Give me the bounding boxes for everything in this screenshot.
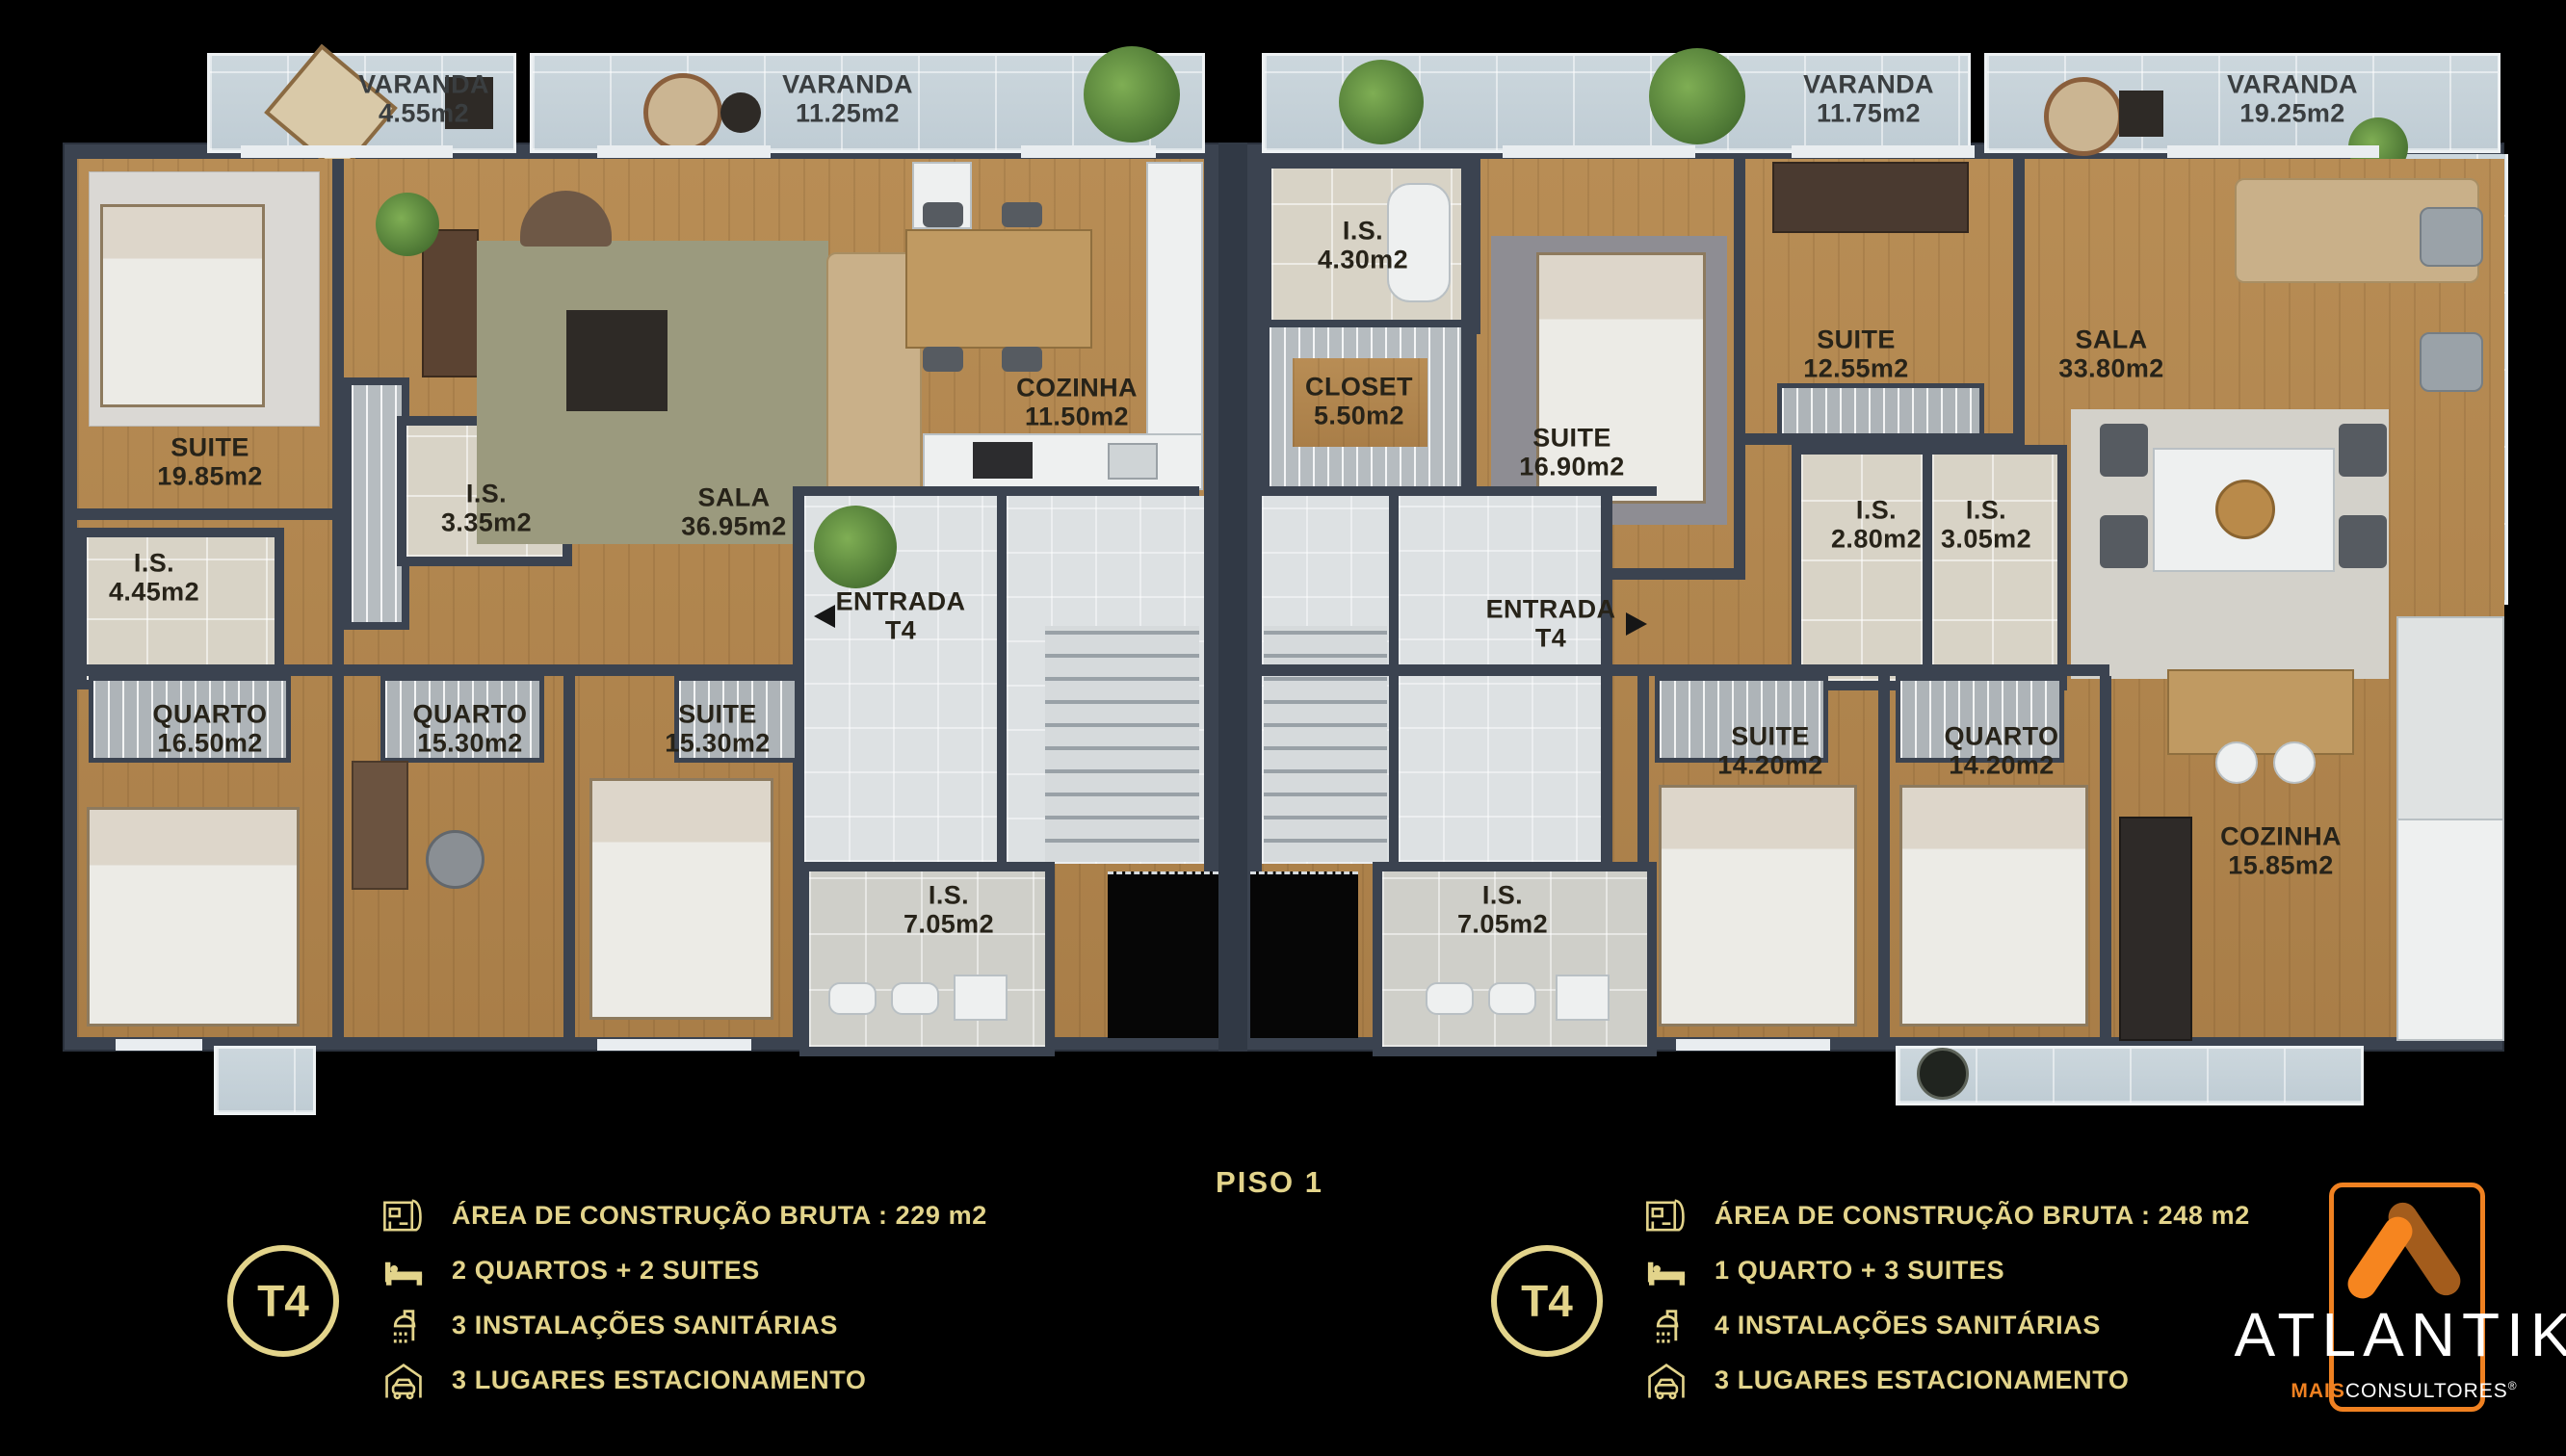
kitchen-counter [923, 433, 1203, 490]
entrance-hall [1399, 496, 1601, 862]
armchair [2420, 332, 2483, 392]
legend-item-area: ÁREA DE CONSTRUÇÃO BRUTA : 229 m2 [380, 1188, 987, 1243]
wall [332, 676, 344, 1045]
room-label-is: I.S.3.35m2 [441, 480, 532, 536]
wardrobe [1777, 383, 1984, 439]
centerpiece [2215, 480, 2275, 539]
room-label-quarto: QUARTO14.20m2 [1945, 722, 2059, 779]
wall [2100, 676, 2111, 1045]
chair [923, 202, 963, 227]
wall [77, 508, 344, 520]
coffee-table [566, 310, 668, 411]
entry-arrow-icon [1626, 612, 1647, 636]
window [1792, 145, 1975, 158]
chair [1002, 202, 1042, 227]
room-label-is: I.S.2.80m2 [1831, 496, 1922, 553]
registered-mark: ® [2508, 1379, 2518, 1392]
brand-subtitle: MAISCONSULTORES® [2291, 1379, 2517, 1403]
sideboard [422, 229, 479, 377]
bed-icon [380, 1248, 427, 1294]
wall [1389, 496, 1399, 864]
hob [973, 442, 1033, 479]
window [1503, 145, 1695, 158]
floorplan-poster: { "floor_label": "PISO 1", "plan": { "le… [0, 0, 2566, 1456]
kitchen-bar-table [2167, 669, 2354, 755]
brand-subtitle-regular: CONSULTORES [2345, 1380, 2508, 1402]
staircase [1045, 626, 1199, 862]
desk [352, 761, 408, 890]
wall [1745, 433, 2013, 445]
planter-icon [1917, 1048, 1969, 1100]
room-label-entrada: ENTRADAT4 [836, 587, 966, 644]
kitchen-appliance-wall [2396, 819, 2504, 1041]
legend-item-bedrooms: 1 QUARTO + 3 SUITES [1643, 1243, 2250, 1298]
stair-void [1108, 871, 1218, 1038]
wall [332, 159, 344, 676]
room-label-cozinha: COZINHA15.85m2 [2220, 822, 2342, 879]
bidet [891, 982, 939, 1015]
cube-seat [2119, 91, 2163, 137]
plant-icon [814, 506, 897, 588]
chair [2100, 424, 2148, 477]
bed-icon [1643, 1248, 1689, 1294]
lounge-chair [2044, 77, 2123, 156]
sink [1108, 443, 1158, 480]
kitchen-island [2119, 817, 2192, 1041]
plant-icon [1649, 48, 1745, 144]
room-label-is: I.S.3.05m2 [1941, 496, 2031, 553]
side-table [720, 92, 761, 133]
legend-left: ÁREA DE CONSTRUÇÃO BRUTA : 229 m2 2 QUAR… [380, 1188, 987, 1408]
wall [1262, 486, 1657, 496]
legend-item-bathrooms: 4 INSTALAÇÕES SANITÁRIAS [1643, 1298, 2250, 1353]
shower-tray [954, 975, 1008, 1021]
room-label-suite: SUITE16.90m2 [1519, 424, 1624, 481]
bed [589, 778, 773, 1020]
room-label-sala: SALA33.80m2 [2058, 325, 2163, 382]
legend-item-parking: 3 LUGARES ESTACIONAMENTO [380, 1353, 987, 1408]
brand-name: ATLANTIK [2234, 1299, 2566, 1370]
wall [804, 486, 1199, 496]
window [597, 1039, 751, 1051]
chair [2100, 515, 2148, 568]
wall [1734, 159, 1745, 580]
armchair [2420, 207, 2483, 267]
plant-icon [1084, 46, 1180, 143]
room-label-suite: SUITE15.30m2 [665, 700, 770, 757]
kitchen-tall-units [1146, 162, 1203, 445]
bed [100, 204, 265, 407]
entry-arrow-icon [814, 605, 835, 628]
legend-right: ÁREA DE CONSTRUÇÃO BRUTA : 248 m2 1 QUAR… [1643, 1188, 2250, 1408]
brand-subtitle-bold: MAIS [2291, 1380, 2345, 1402]
brand-logo-mark-icon [2329, 1194, 2475, 1310]
room-label-varanda: VARANDA19.25m2 [2227, 70, 2358, 127]
legend-item-area: ÁREA DE CONSTRUÇÃO BRUTA : 248 m2 [1643, 1188, 2250, 1243]
window [597, 145, 771, 158]
bar-chair [2273, 741, 2316, 784]
stair-void [1250, 871, 1358, 1038]
window [1676, 1039, 1830, 1051]
chair [923, 347, 963, 372]
room-label-quarto: QUARTO15.30m2 [413, 700, 528, 757]
room-label-varanda: VARANDA11.75m2 [1803, 70, 1934, 127]
room-label-suite: SUITE12.55m2 [1803, 325, 1908, 382]
room-label-sala: SALA36.95m2 [681, 483, 786, 540]
room-label-is: I.S.7.05m2 [903, 881, 994, 938]
hanging-chair [426, 830, 484, 889]
legend-item-bathrooms: 3 INSTALAÇÕES SANITÁRIAS [380, 1298, 987, 1353]
garage-icon [1643, 1358, 1689, 1404]
legend-item-bedrooms: 2 QUARTOS + 2 SUITES [380, 1243, 987, 1298]
bidet [1488, 982, 1536, 1015]
chair [2339, 424, 2387, 477]
room-label-is: I.S.4.30m2 [1318, 217, 1408, 273]
kitchen-counter [2396, 616, 2504, 820]
window [116, 1039, 202, 1051]
bathroom-is-305 [1923, 445, 2067, 690]
room-label-entrada: ENTRADAT4 [1486, 595, 1616, 652]
bar-chair [2215, 741, 2258, 784]
toilet [1426, 982, 1474, 1015]
wall [563, 676, 575, 1045]
wall [1878, 676, 1890, 1045]
legend-item-parking: 3 LUGARES ESTACIONAMENTO [1643, 1353, 2250, 1408]
chair [1002, 347, 1042, 372]
room-label-closet: CLOSET5.50m2 [1305, 373, 1413, 429]
room-label-suite: SUITE14.20m2 [1717, 722, 1822, 779]
unit-badge-t4-left: T4 [227, 1245, 339, 1357]
chair [2339, 515, 2387, 568]
room-label-is: I.S.7.05m2 [1457, 881, 1548, 938]
dining-table [905, 229, 1092, 349]
blueprint-icon [380, 1193, 427, 1239]
blueprint-icon [1643, 1193, 1689, 1239]
toilet [828, 982, 877, 1015]
desk [1772, 162, 1969, 233]
lounge-chair [643, 73, 722, 152]
floor-title: PISO 1 [1216, 1165, 1323, 1200]
room-label-quarto: QUARTO16.50m2 [153, 700, 268, 757]
room-label-varanda: VARANDA11.25m2 [782, 70, 913, 127]
garage-icon [380, 1358, 427, 1404]
window [241, 145, 453, 158]
center-party-wall [1218, 143, 1247, 1052]
shower-icon [1643, 1303, 1689, 1349]
bathroom-is-280 [1792, 445, 1934, 690]
room-label-is: I.S.4.45m2 [109, 549, 199, 606]
window [1021, 145, 1156, 158]
window [2167, 145, 2379, 158]
bed [1659, 785, 1857, 1027]
plant-icon [376, 193, 439, 256]
shower-icon [380, 1303, 427, 1349]
bed [87, 807, 300, 1027]
bed [1899, 785, 2088, 1027]
staircase [1264, 626, 1387, 862]
plant-icon [1339, 60, 1424, 144]
wall [1601, 496, 1612, 864]
shower-tray [1556, 975, 1610, 1021]
room-label-varanda: VARANDA4.55m2 [358, 70, 489, 127]
balcony-bottom-left [214, 1046, 316, 1115]
room-label-suite: SUITE19.85m2 [157, 433, 262, 490]
wall [77, 664, 804, 676]
wall [1262, 664, 2109, 676]
unit-badge-t4-right: T4 [1491, 1245, 1603, 1357]
room-label-cozinha: COZINHA11.50m2 [1016, 374, 1138, 430]
wall [997, 496, 1007, 862]
